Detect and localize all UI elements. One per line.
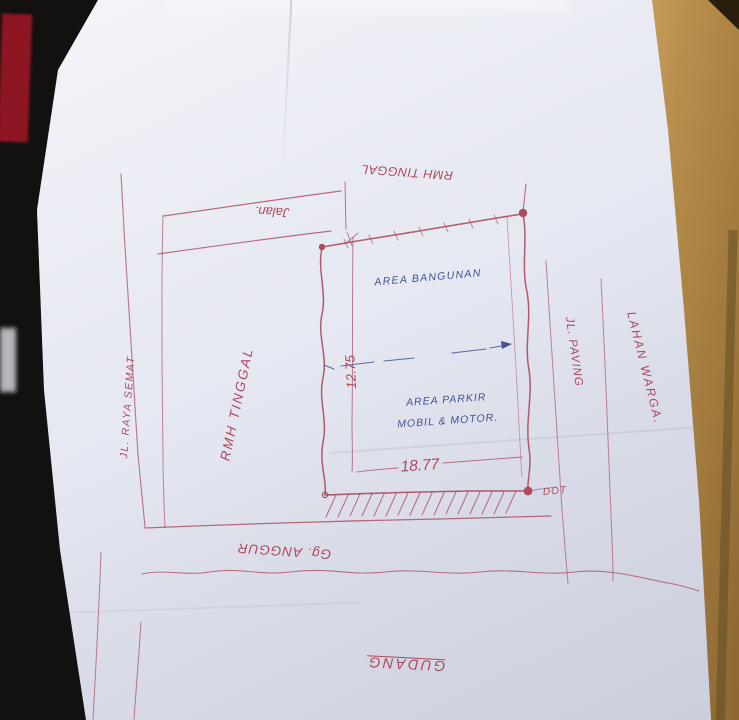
- west-road-left-line: [121, 174, 145, 527]
- ink-drawing: [0, 0, 739, 720]
- west-road-right-line: [162, 215, 165, 528]
- sketch-paper: RMH TINGGAL Jalan. JL. RAYA SEMAT RMH TI…: [0, 0, 739, 720]
- red-object-background: [0, 14, 32, 143]
- width-dimension-line-top: [345, 182, 346, 229]
- south-road-lines: [142, 516, 699, 591]
- label-parking-area: AREA PARKIR MOBIL & MOTOR.: [395, 387, 499, 436]
- corner-point-southeast: [524, 487, 533, 496]
- label-corner-marker: DOT: [543, 486, 568, 498]
- north-road-lines: [158, 191, 341, 254]
- east-road-left-line: [546, 261, 568, 584]
- divider-dashed-line: [341, 345, 507, 366]
- west-road-lower-right-line: [134, 622, 141, 719]
- corner-point-northeast: [519, 209, 527, 217]
- plot-top-edge-ticks: [344, 215, 498, 248]
- south-road-lower-line: [142, 570, 699, 591]
- plot-right-edge: [523, 214, 530, 490]
- north-road-upper-line: [164, 191, 341, 216]
- east-road-right-line: [601, 279, 613, 581]
- plot-bottom-edge: [325, 491, 527, 495]
- plot-bottom-hatching: [326, 491, 516, 517]
- label-length-dimension: 18.77: [400, 457, 440, 475]
- plot-left-edge: [321, 248, 326, 494]
- divider-arrowhead: [501, 341, 512, 349]
- plot-right-inner-line: [507, 217, 522, 477]
- divider-left-tick: [324, 365, 334, 369]
- label-south-building: GUDANG: [366, 654, 445, 673]
- dimension-tick-cross: [345, 232, 358, 246]
- south-road-upper-line: [145, 516, 551, 528]
- label-north-road: Jalan.: [254, 205, 289, 220]
- photo-of-sketch: RMH TINGGAL Jalan. JL. RAYA SEMAT RMH TI…: [0, 0, 739, 720]
- corner-point-northwest: [319, 244, 325, 250]
- north-road-lower-line: [158, 231, 331, 254]
- west-road-lower-left-line: [93, 552, 101, 719]
- plot-corner-stub-line: [523, 184, 526, 212]
- gray-object-background: [0, 328, 16, 392]
- label-width-dimension: 12.75: [343, 355, 358, 389]
- east-road-lines: [546, 261, 613, 584]
